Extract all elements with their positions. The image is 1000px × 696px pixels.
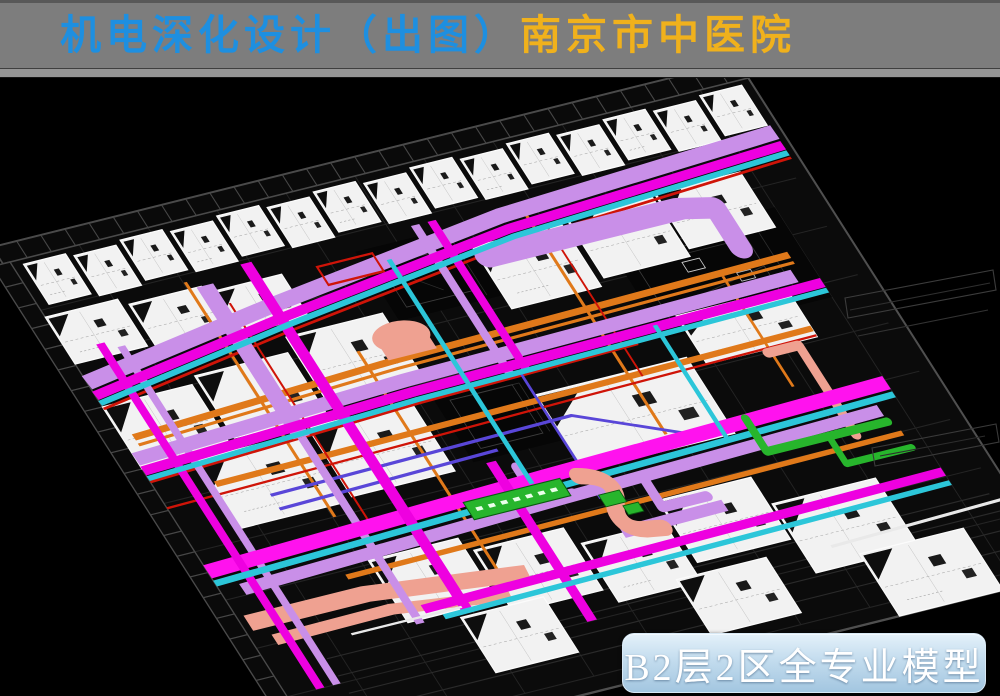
title-bar: 机电深化设计（出图）南京市中医院 bbox=[0, 0, 1000, 78]
model-caption-badge: B2层2区全专业模型 bbox=[622, 633, 986, 693]
bim-model-3d-view bbox=[0, 78, 1000, 696]
slide-title: 机电深化设计（出图）南京市中医院 bbox=[60, 6, 796, 64]
title-project-phase: 机电深化设计（出图） bbox=[60, 12, 520, 58]
model-viewport bbox=[0, 78, 1000, 696]
presentation-slide: 机电深化设计（出图）南京市中医院 B2层2区全专业模型 bbox=[0, 0, 1000, 696]
title-hospital-name: 南京市中医院 bbox=[520, 12, 796, 58]
model-caption-text: B2层2区全专业模型 bbox=[624, 636, 983, 691]
floor-plate-group bbox=[0, 78, 1000, 696]
